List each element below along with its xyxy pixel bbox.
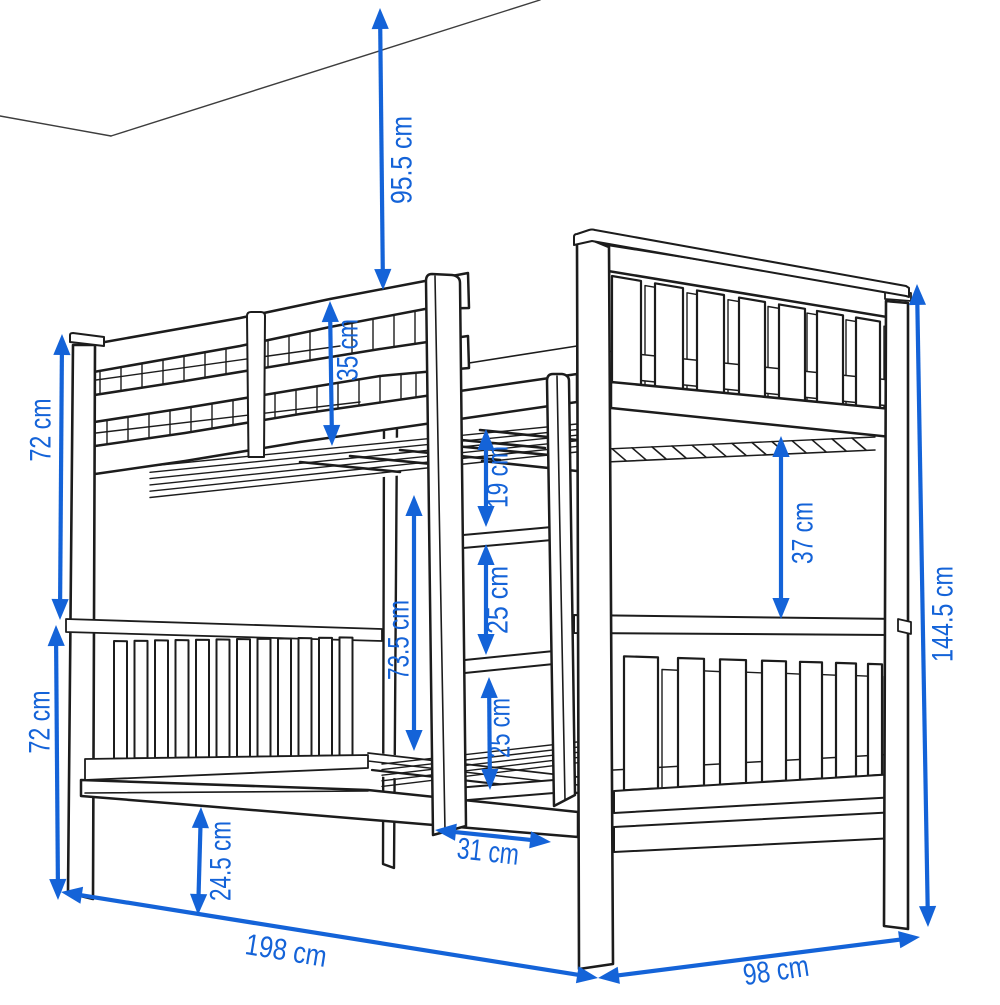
svg-text:73.5 cm: 73.5 cm [383,600,416,680]
svg-text:35 cm: 35 cm [332,319,365,381]
svg-text:95.5 cm: 95.5 cm [386,116,419,204]
svg-text:72 cm: 72 cm [24,691,57,754]
svg-text:144.5 cm: 144.5 cm [927,566,960,662]
svg-text:19 cm: 19 cm [482,446,515,508]
svg-text:24.5 cm: 24.5 cm [205,821,238,901]
svg-text:72 cm: 72 cm [25,399,58,462]
svg-text:37 cm: 37 cm [787,502,820,564]
svg-text:25 cm: 25 cm [482,566,515,634]
svg-text:25 cm: 25 cm [484,698,517,758]
svg-text:31 cm: 31 cm [455,832,520,872]
